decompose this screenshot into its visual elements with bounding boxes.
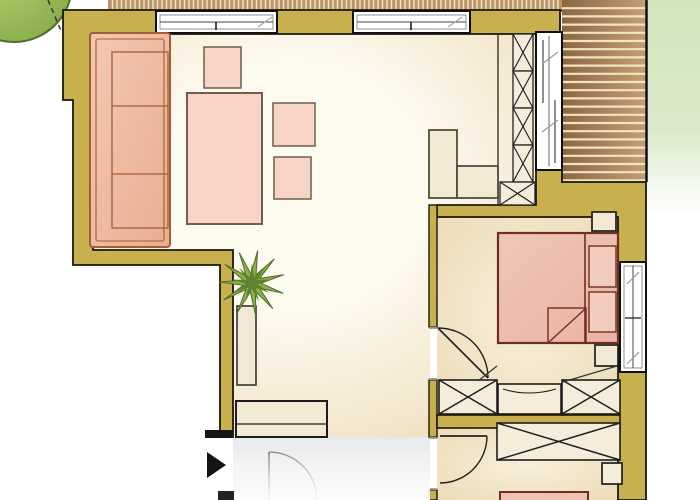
wardrobe-right	[562, 380, 620, 414]
garden-green	[647, 0, 700, 215]
dresser	[498, 384, 561, 414]
sofa	[90, 33, 170, 247]
shelf-column-base	[500, 182, 535, 205]
nightstand-bottom	[595, 345, 618, 366]
nightstand-top	[592, 212, 616, 231]
chair-right-2	[274, 157, 311, 199]
floor-plan	[0, 0, 700, 500]
partition-wall-upper	[429, 205, 437, 327]
kitchen-unit-tall	[429, 130, 457, 198]
dining-table	[187, 93, 262, 224]
balcony-deck	[562, 0, 646, 182]
plan-elements	[0, 0, 700, 500]
chair-right-1	[273, 103, 315, 146]
wall-stub	[218, 491, 234, 500]
tree-canopy	[0, 0, 72, 42]
partition-wall-lower	[429, 490, 437, 500]
wardrobe-left	[439, 380, 497, 414]
wall-end-cap	[205, 430, 233, 438]
shelf-column-cell-2	[513, 71, 533, 108]
terrace-deck-strip	[108, 0, 562, 10]
plant-pot	[237, 306, 256, 385]
floor-plan-canvas	[0, 0, 700, 500]
partition-wall-mid	[429, 380, 437, 437]
bottom-fade	[233, 450, 430, 500]
entry-bench	[236, 401, 327, 437]
entrance-arrow	[207, 452, 226, 478]
kitchen-unit-low	[457, 166, 498, 198]
shelf-column-cell-3	[513, 108, 533, 145]
shelf-column-cell-1	[513, 34, 533, 71]
shelf-column-cell-4	[513, 145, 533, 182]
pillow-2	[589, 292, 616, 332]
side-table-2	[602, 463, 622, 484]
chair-top	[204, 47, 241, 88]
wardrobe-2	[497, 423, 620, 460]
bed-2	[500, 492, 588, 500]
pillow-1	[589, 246, 616, 287]
